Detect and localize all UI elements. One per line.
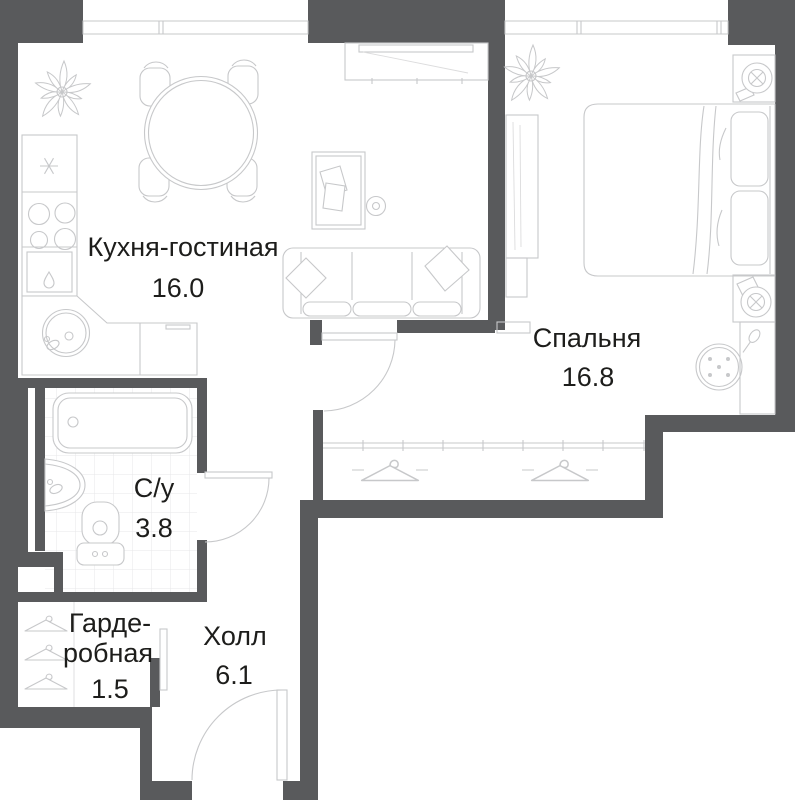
wall-segment [300, 518, 318, 800]
entrance-door-swing [192, 690, 282, 780]
built-in-closet [323, 440, 645, 480]
wall-segment [645, 415, 795, 432]
kitchen-area [22, 60, 258, 375]
hanger-icon [25, 616, 67, 631]
room-area-wardrobe: 1.5 [91, 674, 129, 704]
coffee-table [312, 152, 365, 229]
window [83, 21, 308, 34]
sofa [283, 246, 480, 318]
hanger-icon [25, 674, 67, 689]
magazine [323, 183, 345, 211]
room-label-bathroom: С/у [134, 473, 175, 503]
wall-segment-shaft [35, 388, 45, 551]
table-lamp-icon [741, 287, 771, 317]
doors [192, 333, 397, 780]
side-stool [367, 197, 386, 216]
room-label-hall: Холл [203, 621, 267, 651]
hanger-icon [25, 645, 67, 660]
wall-segment [310, 320, 322, 345]
room-label-bedroom: Спальня [533, 323, 642, 353]
room-label-kitchen-living: Кухня-гостиная [87, 232, 278, 262]
floor-plan: Кухня-гостиная 16.0 Спальня 16.8 С/у 3.8… [0, 0, 795, 800]
wall-segment [728, 0, 795, 45]
plant-icon [504, 45, 561, 103]
wall-segment [197, 540, 207, 592]
bedroom-wardrobe [506, 115, 538, 258]
wall-segment [645, 432, 663, 500]
wall-segment-niche [54, 552, 63, 592]
room-label-wardrobe-line2: робная [63, 638, 153, 668]
wall-segment [18, 592, 207, 602]
plant-icon [35, 61, 92, 119]
pillow [731, 191, 768, 265]
pillow [731, 112, 768, 186]
wall-segment [775, 45, 795, 432]
wall-segment-shaft [18, 388, 28, 553]
pouf [696, 344, 742, 390]
entrance-door-leaf [277, 690, 287, 780]
wall-segment [397, 320, 495, 333]
bathroom-door-swing [205, 478, 269, 542]
room-area-bathroom: 3.8 [135, 513, 173, 543]
cabinet [506, 258, 527, 297]
tv [359, 45, 473, 52]
wall-segment [17, 378, 207, 388]
bathtub [53, 393, 192, 453]
bedroom-door-leaf [322, 333, 397, 340]
room-label-wardrobe-line1: Гарде- [69, 608, 151, 638]
hanger-icon [532, 460, 589, 480]
toilet [77, 502, 124, 565]
kitchen-sink-icon [43, 310, 90, 357]
spoon-icon [739, 328, 762, 355]
floor-plan-canvas: Кухня-гостиная 16.0 Спальня 16.8 С/у 3.8… [0, 0, 795, 800]
wall-segment [0, 707, 152, 728]
bedroom-door-swing [324, 340, 395, 411]
wall-segment [313, 410, 323, 500]
room-area-hall: 6.1 [215, 660, 253, 690]
wall-segment [488, 43, 505, 330]
wall-segment [308, 0, 505, 43]
room-area-kitchen-living: 16.0 [152, 273, 205, 303]
room-area-bedroom: 16.8 [562, 362, 615, 392]
wall-segment [197, 388, 207, 473]
wall-segment [283, 781, 318, 800]
hanger-icon [362, 460, 419, 480]
window [505, 21, 728, 34]
wardrobe-door-leaf [160, 629, 167, 690]
bed [584, 104, 775, 276]
wall-segment [0, 43, 18, 728]
table-lamp-icon [742, 63, 772, 93]
wall-segment [300, 500, 663, 518]
wall-segment [140, 728, 152, 800]
wall-segment [0, 0, 83, 43]
dining-table [145, 77, 258, 190]
bathroom-door-leaf [205, 472, 272, 478]
console-table [740, 322, 775, 414]
dining-set [139, 60, 258, 202]
